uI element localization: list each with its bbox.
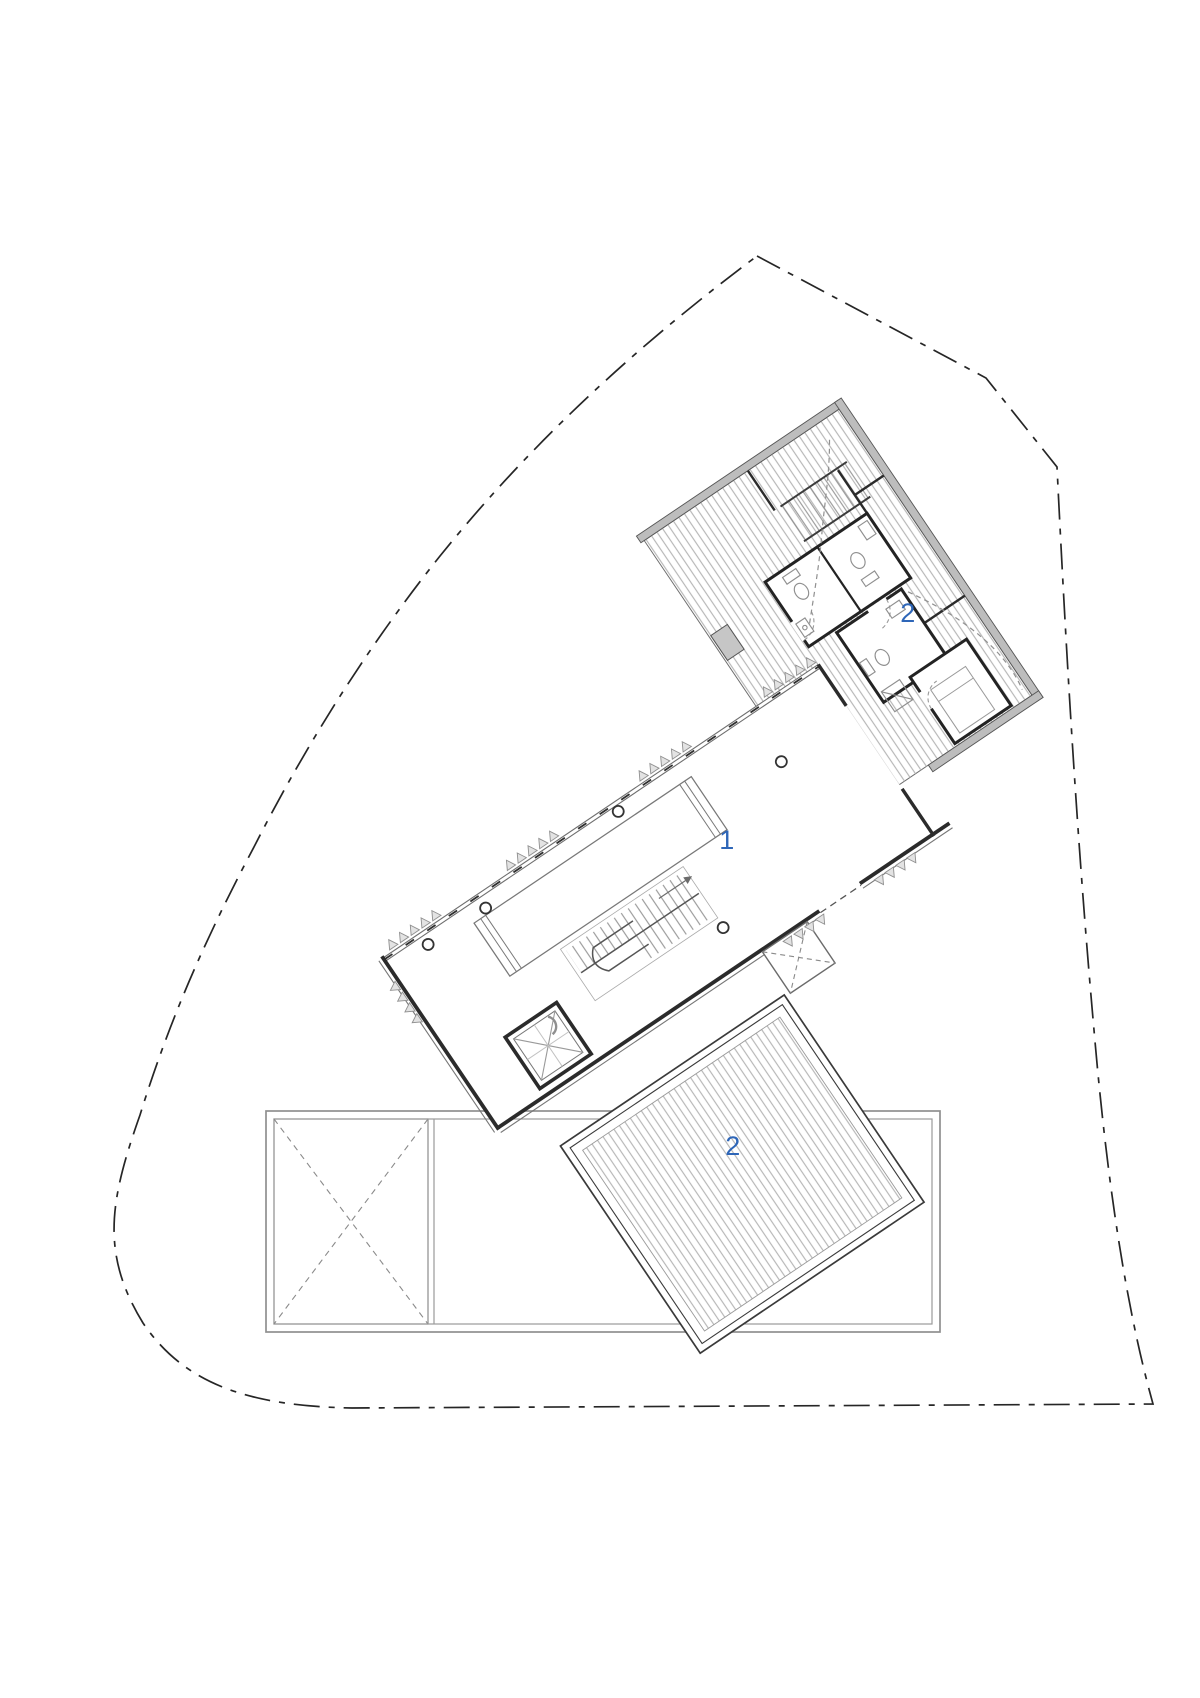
label-lower-deck: 2 [725, 1131, 741, 1161]
floor-plan-canvas: 1 2 2 [0, 0, 1200, 1698]
label-main-hall: 1 [719, 825, 735, 855]
label-upper-deck: 2 [900, 598, 916, 628]
floor-plan-page: 1 2 2 [0, 0, 1200, 1698]
